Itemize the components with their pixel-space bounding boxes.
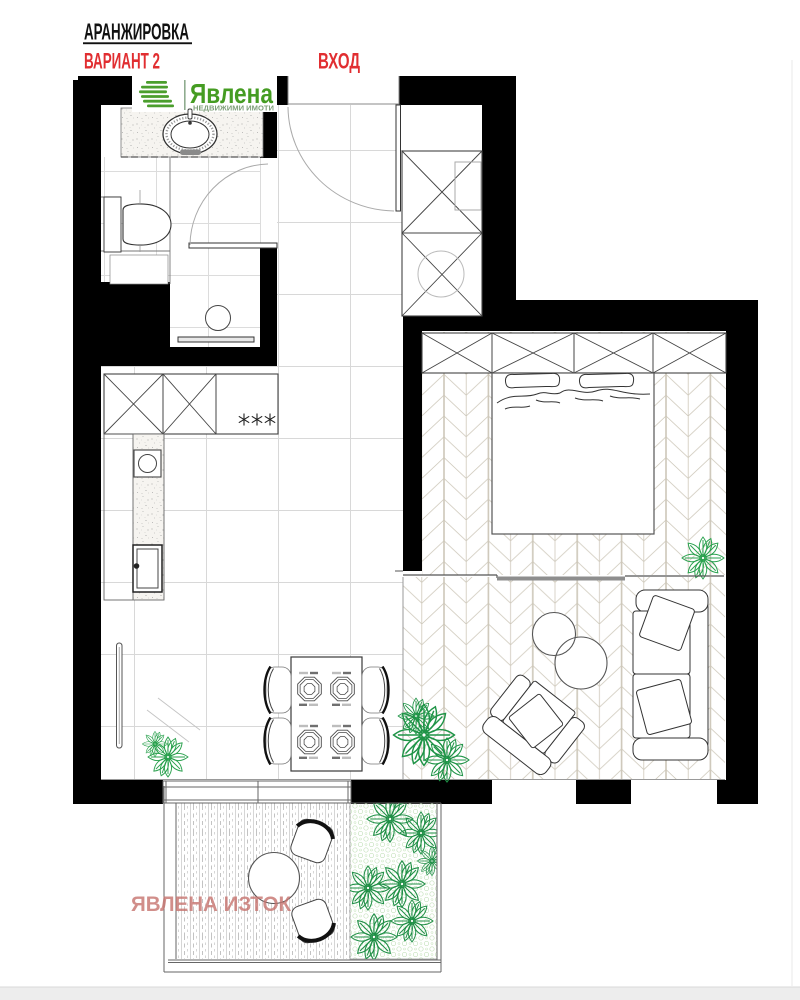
svg-text:НЕДВИЖИМИ ИМОТИ: НЕДВИЖИМИ ИМОТИ	[193, 104, 274, 113]
svg-text:ВАРИАНТ 2: ВАРИАНТ 2	[84, 49, 160, 74]
svg-text:ВХОД: ВХОД	[318, 49, 360, 74]
svg-text:АРАНЖИРОВКА: АРАНЖИРОВКА	[84, 19, 189, 45]
svg-text:ЯВЛЕНА ИЗТОК: ЯВЛЕНА ИЗТОК	[131, 892, 292, 916]
